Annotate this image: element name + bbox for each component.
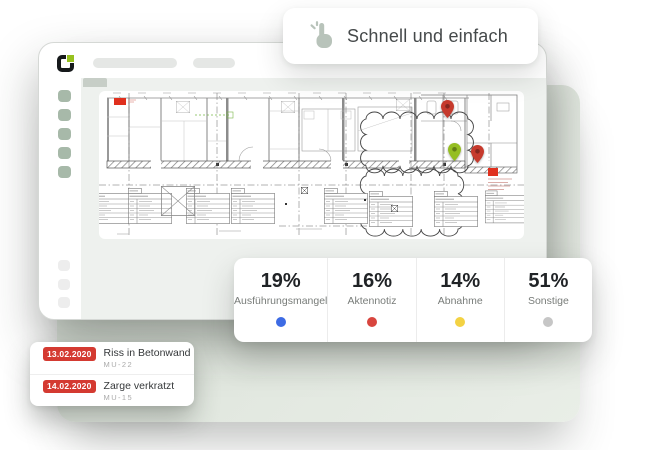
stat-ausfuehrungsmangel: 19% Ausführungsmangel — [234, 258, 327, 342]
sidebar-item-2[interactable] — [58, 109, 71, 121]
stats-card: 19% Ausführungsmangel 16% Aktennotiz 14%… — [234, 258, 592, 342]
sidebar-item-5[interactable] — [58, 166, 71, 178]
green-pin[interactable] — [448, 143, 461, 161]
sidebar-item-7[interactable] — [58, 279, 70, 290]
stat-color-dot — [543, 317, 553, 327]
ticket-row[interactable]: 14.02.2020 Zarge verkratzt MU-15 — [30, 374, 194, 406]
red-pin[interactable] — [441, 100, 454, 118]
tap-click-icon — [307, 21, 335, 51]
ticket-title: Riss in Betonwand — [104, 347, 191, 359]
ticket-code: MU-15 — [104, 393, 175, 402]
stat-abnahme: 14% Abnahme — [416, 258, 504, 342]
ticket-date-badge: 13.02.2020 — [43, 347, 96, 361]
logo-accent-square — [67, 55, 74, 62]
panel-tab — [83, 78, 107, 87]
stat-aktennotiz: 16% Aktennotiz — [327, 258, 415, 342]
stat-sonstige: 51% Sonstige — [504, 258, 592, 342]
stat-label: Sonstige — [528, 295, 569, 307]
sidebar-item-1[interactable] — [58, 90, 71, 102]
stat-value: 16% — [352, 271, 392, 291]
ticket-row[interactable]: 13.02.2020 Riss in Betonwand MU-22 — [30, 342, 194, 373]
ticket-info: Riss in Betonwand MU-22 — [104, 347, 191, 369]
stat-label: Ausführungsmangel — [234, 295, 327, 307]
toolbar-placeholder-short — [193, 58, 235, 68]
sidebar-item-3[interactable] — [58, 128, 71, 140]
red-pin[interactable] — [471, 145, 484, 163]
toolbar-placeholder-long — [93, 58, 177, 68]
stat-value: 51% — [528, 271, 568, 291]
floorplan-drawing — [99, 91, 524, 239]
ticket-code: MU-22 — [104, 360, 191, 369]
ticket-list-card: 13.02.2020 Riss in Betonwand MU-22 14.02… — [30, 342, 194, 406]
ticket-date-badge: 14.02.2020 — [43, 380, 96, 394]
ticket-info: Zarge verkratzt MU-15 — [104, 380, 175, 402]
banner-text: Schnell und einfach — [347, 26, 508, 47]
floorplan-canvas[interactable] — [99, 91, 524, 239]
ticket-title: Zarge verkratzt — [104, 380, 175, 392]
sidebar-item-8[interactable] — [58, 297, 70, 308]
stat-color-dot — [455, 317, 465, 327]
feature-banner: Schnell und einfach — [283, 8, 538, 64]
planradar-logo-icon — [57, 55, 74, 72]
stat-value: 14% — [440, 271, 480, 291]
stat-label: Abnahme — [438, 295, 483, 307]
stat-label: Aktennotiz — [347, 295, 396, 307]
sidebar-item-6[interactable] — [58, 260, 70, 271]
marketing-screenshot: Schnell und einfach 19% Ausführungsmange… — [0, 0, 661, 450]
sidebar-item-4[interactable] — [58, 147, 71, 159]
stat-color-dot — [276, 317, 286, 327]
stat-value: 19% — [261, 271, 301, 291]
stat-color-dot — [367, 317, 377, 327]
